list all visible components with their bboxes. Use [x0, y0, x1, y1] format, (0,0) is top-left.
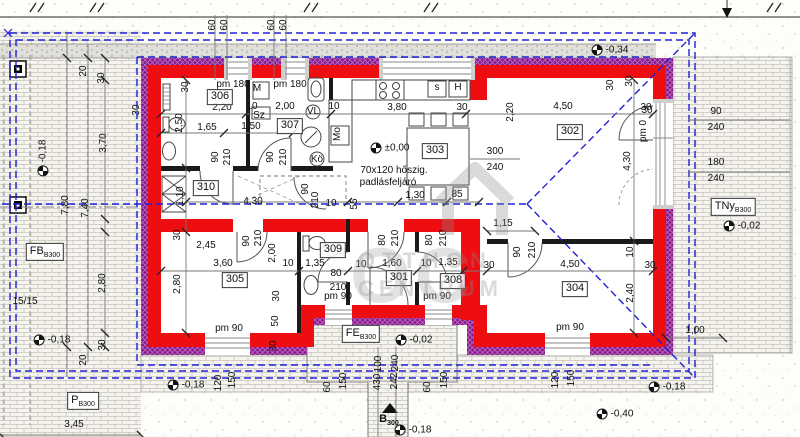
floor-plan-canvas: 60606060pm 180302,20Mpm 180102,00Sz2,501…: [0, 0, 800, 437]
plan-drawing: [0, 0, 800, 437]
terrace-door-window: [653, 99, 673, 209]
partition-wall: [246, 78, 250, 168]
terrace-fb-hatch: [0, 30, 141, 437]
porch-fe-hatch: [307, 325, 457, 382]
dining-table: [407, 113, 469, 200]
terrace-tny-hatch: [673, 57, 792, 353]
gravel-strip: [0, 44, 656, 58]
